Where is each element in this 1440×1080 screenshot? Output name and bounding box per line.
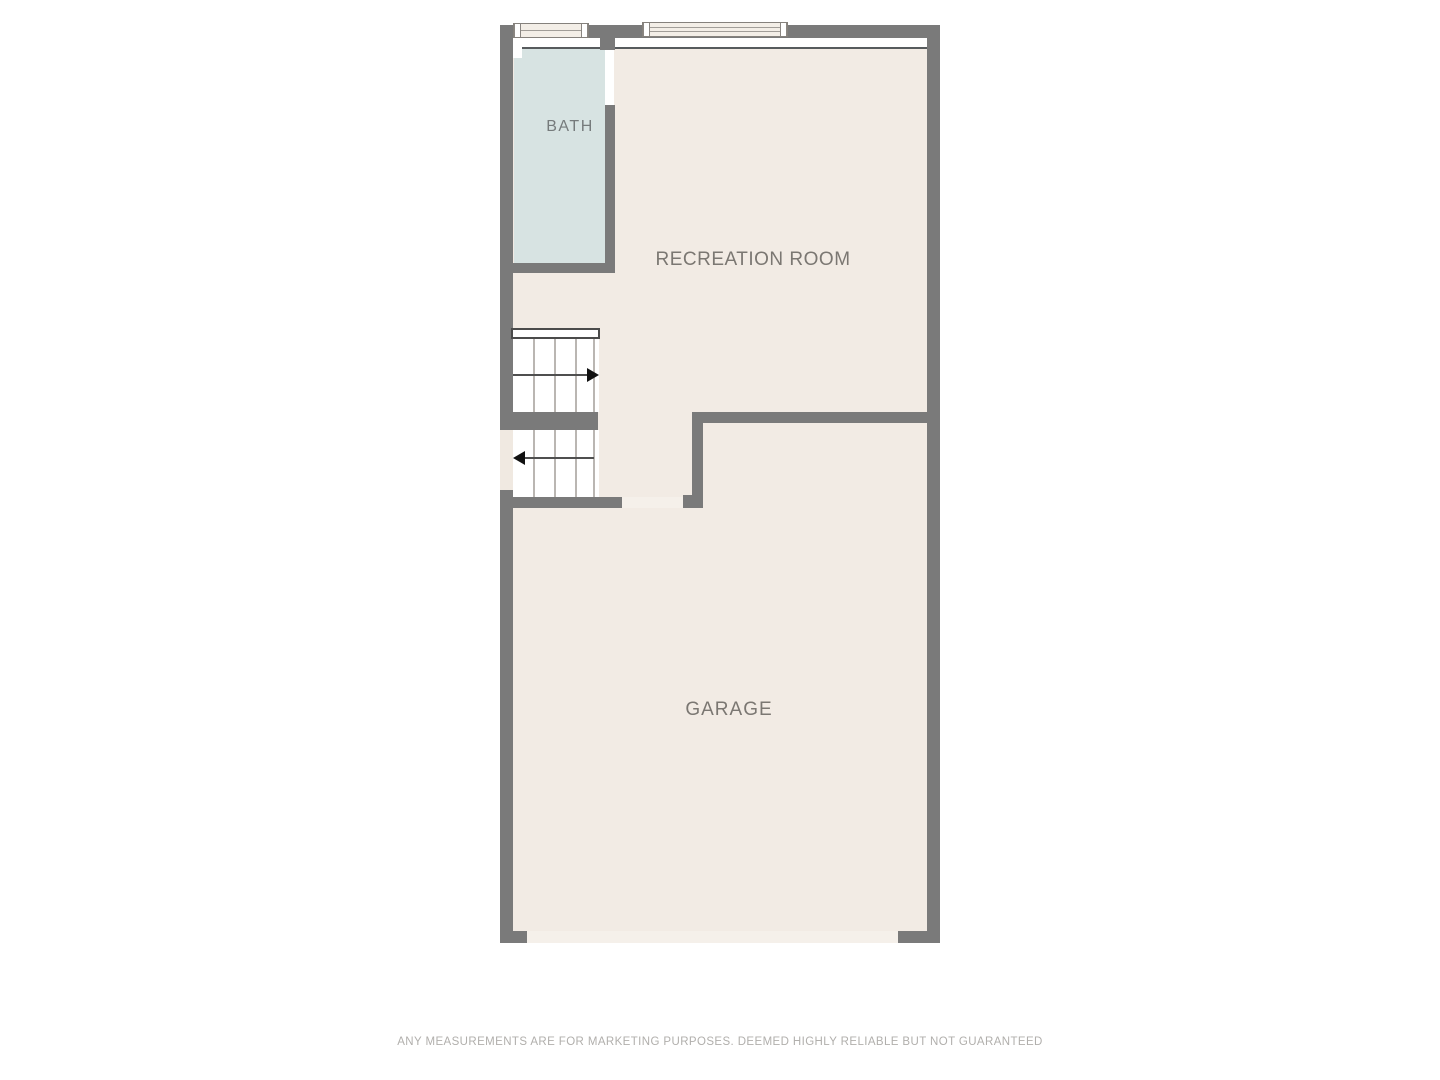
wall-right [927, 25, 940, 943]
staircase-lower-flight [513, 430, 599, 497]
window-pane-line [650, 31, 780, 32]
window [513, 23, 589, 38]
left-wall-opening [500, 430, 513, 490]
stair-tread-line [533, 430, 535, 497]
staircase-upper-flight [513, 339, 599, 412]
window-pane-line [650, 27, 780, 28]
stair-direction-arrow-up [513, 374, 589, 376]
bath-door-jamb [600, 38, 615, 50]
window-sill-band-right [615, 38, 927, 49]
stair-landing-rail [511, 328, 600, 339]
wall-bottom-right-corner [898, 931, 940, 943]
floor-plan: BATH RECREATION ROOM GARAGE ANY MEASUREM… [0, 0, 1440, 1080]
garage-entry-threshold [622, 497, 683, 508]
wall-bottom-left-corner [500, 931, 527, 943]
window-pane-line [521, 30, 581, 31]
window-frame-end [780, 23, 787, 36]
stair-tread-line [575, 430, 577, 497]
garage-door-opening [527, 931, 898, 943]
room-label-bath: BATH [546, 118, 593, 136]
window-frame-end [643, 23, 650, 36]
window-frame-end [581, 24, 588, 37]
stair-bottom-wall [500, 497, 622, 508]
arrow-left-icon [513, 451, 525, 465]
garage-partition-wall [692, 412, 703, 508]
bath-wall-bottom [513, 263, 615, 273]
stair-mid-wall [500, 412, 598, 430]
room-label-garage: GARAGE [685, 699, 772, 721]
bath-wall-right [605, 105, 615, 273]
garage-partition-jamb [683, 495, 703, 508]
bath-room-area [514, 47, 605, 263]
stair-tread-line [554, 430, 556, 497]
bath-door-opening [605, 50, 614, 105]
garage-top-wall [692, 412, 928, 423]
stair-tread-line [593, 430, 595, 497]
window [642, 22, 788, 37]
room-label-recreation-room: RECREATION ROOM [655, 249, 850, 271]
disclaimer-text: ANY MEASUREMENTS ARE FOR MARKETING PURPO… [0, 1036, 1440, 1048]
arrow-right-icon [587, 368, 599, 382]
window-frame-end [514, 24, 521, 37]
stair-direction-arrow-down [522, 457, 594, 459]
